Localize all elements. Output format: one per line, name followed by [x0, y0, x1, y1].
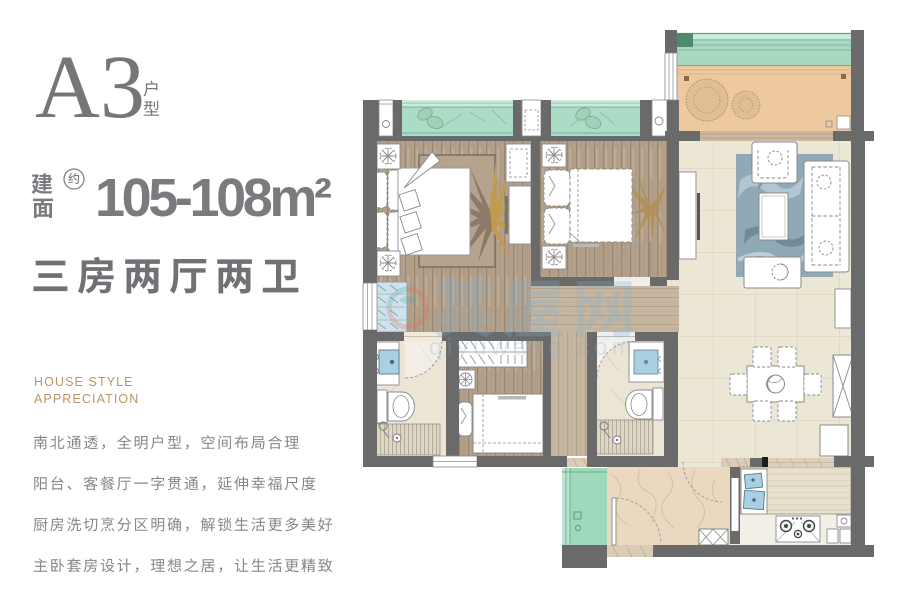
svg-text:APPRECIATION: APPRECIATION [34, 392, 139, 406]
svg-text:qiyuwang.com: qiyuwang.com [429, 334, 636, 361]
svg-text:105-108m²: 105-108m² [95, 168, 331, 228]
svg-text:A3: A3 [35, 38, 145, 137]
svg-text:HOUSE STYLE: HOUSE STYLE [34, 375, 134, 389]
